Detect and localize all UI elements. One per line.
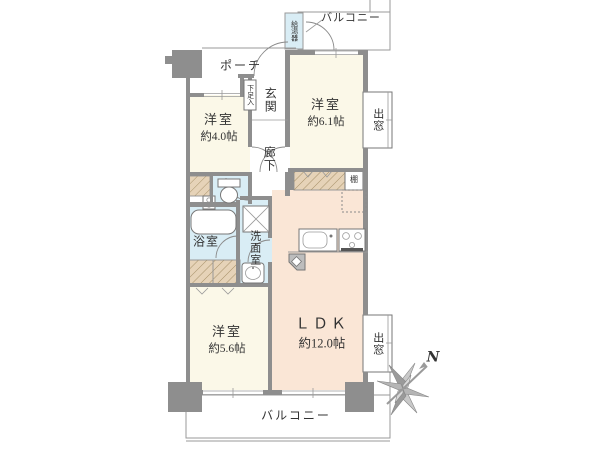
closet-bedroom-6	[294, 170, 345, 190]
washing-machine	[243, 206, 269, 232]
balcony-bottom-label: バルコニー	[261, 410, 331, 423]
washroom-label: 洗面室	[248, 230, 260, 266]
bedroom-6-label: 洋室 約6.1帖	[307, 98, 344, 128]
closet-bedroom-5	[187, 260, 240, 285]
water-heater-label: 給湯器	[290, 21, 297, 42]
compass-north-label: N	[427, 351, 440, 366]
bathroom-label: 浴室	[193, 236, 219, 249]
bathtub	[191, 210, 236, 234]
hallway-label: 廊下	[263, 146, 276, 172]
entrance-label: 玄関	[264, 87, 277, 113]
bedroom-4-label: 洋室 約4.0帖	[200, 113, 237, 143]
bay-window-bottom-label: 出窓	[371, 332, 383, 356]
shelf-label: 棚	[350, 176, 358, 184]
balcony-top-label: バルコニー	[321, 13, 381, 25]
balcony-top-outline	[298, 0, 390, 50]
ldk-label: ＬＤＫ 約12.0帖	[295, 318, 349, 351]
bay-window-top-label: 出窓	[371, 108, 383, 132]
ldk-floor	[272, 190, 368, 390]
closet-upper-left	[187, 176, 210, 196]
floor-plan: バルコニー 給湯器 ポーチ 下足入 玄関 洋室 約4.0帖 洋室 約6.1帖 出…	[0, 0, 600, 450]
porch-label: ポーチ	[220, 60, 262, 73]
shoe-box-label: 下足入	[246, 85, 253, 106]
floor-plan-drawing	[0, 0, 600, 450]
wash-basin	[242, 263, 264, 283]
toilet	[218, 179, 240, 203]
bedroom-5-label: 洋室 約5.6帖	[208, 325, 245, 355]
